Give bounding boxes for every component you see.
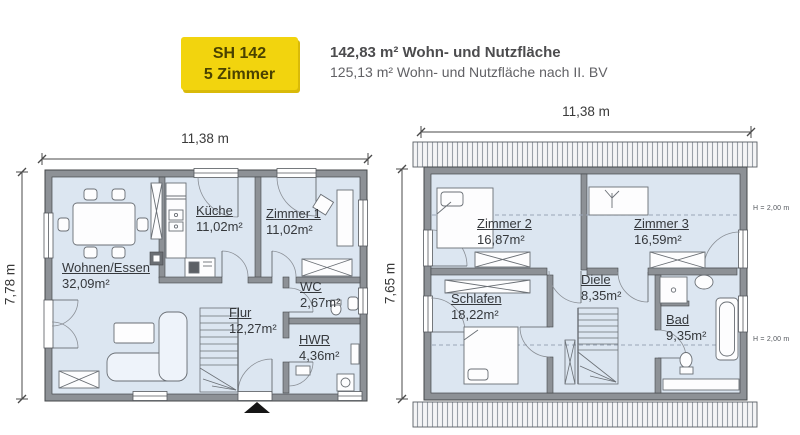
room-area: 16,87m² <box>477 232 532 248</box>
height-marker-lower: H = 2,00 m <box>753 336 789 343</box>
room-name: WC <box>300 279 340 295</box>
room-label-wohnen-essen: Wohnen/Essen 32,09m² <box>62 260 150 292</box>
room-label-zimmer-1: Zimmer 1 11,02m² <box>266 206 321 238</box>
room-label-bad: Bad 9,35m² <box>666 312 706 344</box>
model-badge-code: SH 142 <box>181 43 298 64</box>
uf-width-dimension: 11,38 m <box>531 104 641 119</box>
room-area: 2,67m² <box>300 295 340 311</box>
uf-wardrobe-z2-icon <box>475 252 530 267</box>
uf-roof-hatch-top <box>413 142 757 167</box>
room-label-zimmer-2: Zimmer 2 16,87m² <box>477 216 532 248</box>
room-name: Wohnen/Essen <box>62 260 150 276</box>
room-name: Küche <box>196 203 243 219</box>
room-label-diele: Diele 8,35m² <box>581 272 621 304</box>
room-area: 4,36m² <box>299 348 339 364</box>
room-label-hwr: HWR 4,36m² <box>299 332 339 364</box>
height-marker-upper: H = 2,00 m <box>753 205 789 212</box>
gf-entrance-arrow <box>244 402 270 413</box>
room-area: 8,35m² <box>581 288 621 304</box>
room-area: 18,22m² <box>451 307 502 323</box>
uf-dimension-width-line <box>417 126 755 138</box>
upper-floor-plan <box>396 126 757 427</box>
gf-depth-dimension: 7,78 m <box>3 240 18 330</box>
regulated-area-text: 125,13 m² Wohn- und Nutzfläche nach II. … <box>330 64 608 80</box>
room-label-zimmer-3: Zimmer 3 16,59m² <box>634 216 689 248</box>
gf-wardrobe2-icon <box>302 259 352 276</box>
uf-dimension-depth-line <box>396 165 408 403</box>
room-label-wc: WC 2,67m² <box>300 279 340 311</box>
gf-width-dimension: 11,38 m <box>150 131 260 146</box>
room-name: Zimmer 1 <box>266 206 321 222</box>
uf-wardrobe-z3-icon <box>650 252 705 268</box>
gf-dimension-width-line <box>38 153 372 165</box>
room-label-schlafen: Schlafen 18,22m² <box>451 291 502 323</box>
uf-roof-hatch-bottom <box>413 402 757 427</box>
room-label-flur: Flur 12,27m² <box>229 305 277 337</box>
model-badge-rooms: 5 Zimmer <box>181 64 298 85</box>
room-area: 32,09m² <box>62 276 150 292</box>
room-area: 11,02m² <box>196 219 243 235</box>
room-name: Zimmer 2 <box>477 216 532 232</box>
room-area: 9,35m² <box>666 328 706 344</box>
gf-cabinet-icon <box>151 183 162 239</box>
room-name: Diele <box>581 272 621 288</box>
gf-dimension-depth-line <box>16 168 28 403</box>
gf-chimney <box>150 252 163 265</box>
uf-depth-dimension: 7,65 m <box>383 239 398 329</box>
room-name: Zimmer 3 <box>634 216 689 232</box>
room-label-kueche: Küche 11,02m² <box>196 203 243 235</box>
room-name: Flur <box>229 305 277 321</box>
room-area: 12,27m² <box>229 321 277 337</box>
room-name: Bad <box>666 312 706 328</box>
room-area: 16,59m² <box>634 232 689 248</box>
floorplan-page: SH 142 5 Zimmer 142,83 m² Wohn- und Nutz… <box>0 0 800 435</box>
model-badge: SH 142 5 Zimmer <box>181 37 298 90</box>
room-name: Schlafen <box>451 291 502 307</box>
room-name: HWR <box>299 332 339 348</box>
total-area-text: 142,83 m² Wohn- und Nutzfläche <box>330 44 561 61</box>
room-area: 11,02m² <box>266 222 321 238</box>
gf-wardrobe-icon <box>59 371 99 388</box>
